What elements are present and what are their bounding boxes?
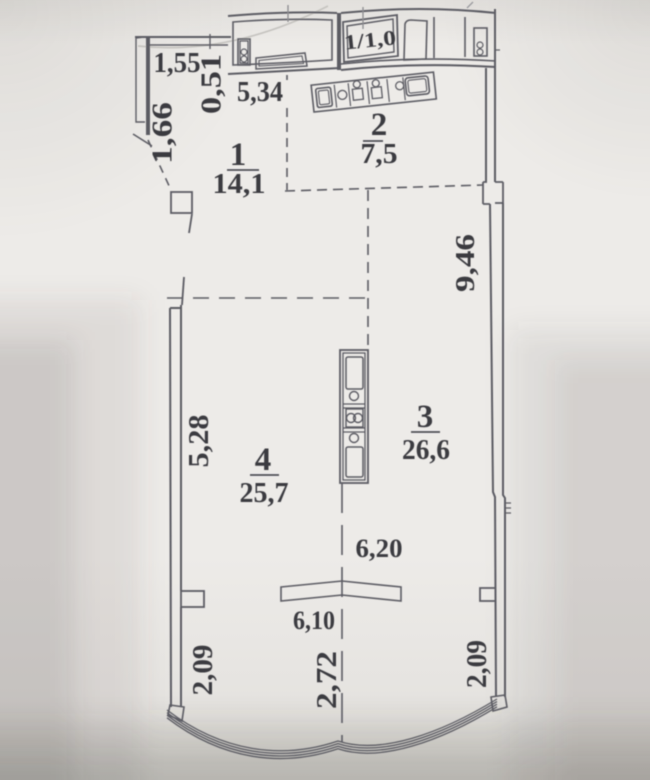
svg-text:7,5: 7,5 (361, 139, 398, 170)
svg-text:26,6: 26,6 (402, 435, 450, 466)
svg-text:2,09: 2,09 (187, 645, 219, 696)
svg-text:2: 2 (371, 107, 388, 143)
svg-text:9,46: 9,46 (450, 234, 480, 292)
svg-text:2,72: 2,72 (311, 651, 343, 709)
svg-text:25,7: 25,7 (240, 478, 289, 509)
svg-text:1: 1 (230, 137, 247, 173)
svg-text:4: 4 (255, 442, 272, 478)
svg-text:6,10: 6,10 (293, 606, 335, 635)
svg-text:5,34: 5,34 (237, 77, 283, 108)
svg-text:5,28: 5,28 (183, 415, 215, 468)
svg-text:14,1: 14,1 (213, 169, 266, 200)
svg-text:1,55: 1,55 (154, 48, 201, 79)
svg-text:6,20: 6,20 (356, 534, 403, 563)
svg-text:0,51: 0,51 (197, 54, 228, 114)
svg-text:2,09: 2,09 (461, 640, 493, 688)
svg-text:3: 3 (417, 399, 434, 435)
svg-text:1,66: 1,66 (148, 102, 179, 164)
